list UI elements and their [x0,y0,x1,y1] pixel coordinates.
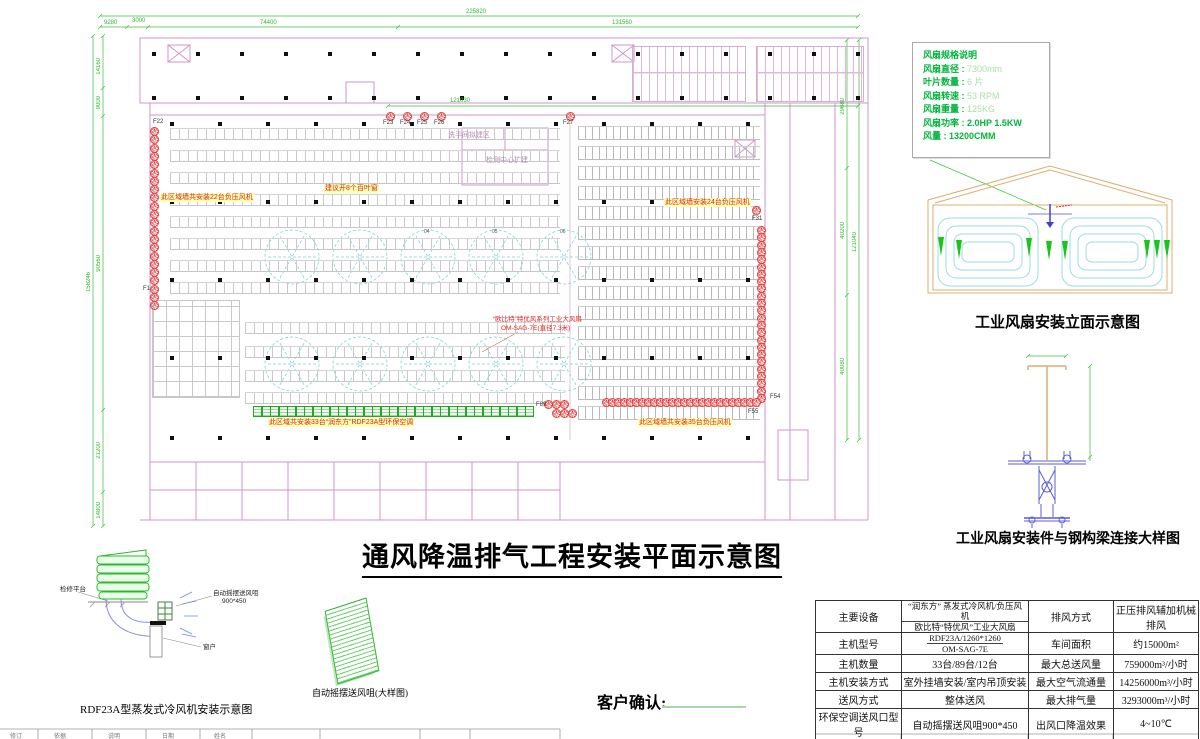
column-marker [416,52,420,56]
titleblock-strip-label: 姓名 [214,731,226,739]
dim-label: 131560 [612,20,632,26]
spec-table-cell: 主要设备 [816,601,902,633]
titleblock-strip-label: 日期 [162,731,174,739]
nozzle-label: 自动摇摆送风咀 [213,590,259,597]
negative-pressure-fan-icon [752,398,761,407]
machine-block [632,46,746,102]
fan-spec-item: 风扇直径 : 7300mm [923,63,1049,77]
cooler-detail-caption: RDF23A型蒸发式冷风机安装示意图 [80,701,252,717]
column-marker [218,436,222,440]
column-marker [504,96,508,100]
column-marker [746,122,750,126]
beam-detail-drawing [1008,366,1086,528]
workstation-row [170,282,560,294]
annotation-test-center: 检测中心扩建 [486,155,528,165]
workstation-row-dense [578,206,760,220]
workstation-row-dense [578,306,760,320]
airflow-arrow-icon [1046,241,1052,260]
elevation-caption: 工业风扇安装立面示意图 [975,311,1140,332]
spec-table-cell: 整体送风 [902,691,1029,709]
annotation-right-fans: 此区域墙安装24台负压风机 [664,198,751,207]
column-marker [196,52,200,56]
annotation-washroom: 洗手间拟建区 [448,130,490,140]
column-marker [170,278,174,282]
spec-table-cell: 送风方式 [816,691,902,709]
workstation-row-dense [578,226,760,240]
workstation-row-dense [578,146,760,160]
dim-label: 21200 [96,442,102,459]
annotation-big-fan-model-1: “欧比特”特优风系列工业大风扇 [492,315,583,324]
spec-table-cell: 约15000m² [1114,633,1199,655]
column-marker [410,436,414,440]
column-marker [768,52,772,56]
workstation-row-dense [578,166,760,180]
workstation-row-dense [578,286,760,300]
column-marker [746,436,750,440]
workstation-row [245,392,565,404]
ceiling-fan-number: 05 [492,230,498,235]
elevation-drawing [928,166,1172,293]
machine-block [756,46,864,102]
nozzle-detail-caption: 自动摇摆送风咀(大样图) [312,686,408,699]
column-marker [458,356,462,360]
column-marker [284,52,288,56]
column-marker [698,436,702,440]
fan-spec-item: 风量 : 13200CMM [923,130,1049,144]
column-marker [554,278,558,282]
column-marker [266,122,270,126]
dim-label: 9000 [96,96,102,109]
column-marker [314,122,318,126]
column-marker [362,278,366,282]
f-marker: F55 [748,409,758,415]
column-marker [554,200,558,204]
spec-table-cell: 759000m³/小时 [1114,655,1199,673]
column-marker [602,436,606,440]
column-marker [504,52,508,56]
column-marker [856,96,860,100]
column-marker [548,96,552,100]
ceiling-fan-circles [265,230,591,391]
spec-table: 主要设备“润东方” 蒸发式冷风机/负压风机欧比特“特优风”工业大风扇排风方式正压… [815,600,1199,739]
workstation-row [170,172,560,184]
column-marker [506,200,510,204]
spec-table-row: 送风方式整体送风最大排气量3293000m³/小时 [816,691,1199,709]
column-marker [314,200,318,204]
customer-confirm-signature-line[interactable] [662,706,746,708]
column-marker [592,96,596,100]
spec-table-cell: 33台/89台/12台 [902,655,1029,673]
ceiling-fan-number: 04 [424,230,430,235]
column-marker [506,122,510,126]
column-marker [152,96,156,100]
column-marker [458,122,462,126]
column-marker [410,122,414,126]
column-marker [592,52,596,56]
column-marker [218,122,222,126]
dim-label: 40200 [840,222,846,239]
column-marker [602,200,606,204]
f-marker: F25 [417,120,427,126]
column-marker [698,278,702,282]
spec-table-cell: 正压排风辅加机械排风 [1114,601,1199,633]
column-marker [266,356,270,360]
window-label: 窗户 [203,644,216,651]
column-marker [724,96,728,100]
column-marker [170,356,174,360]
column-marker [328,96,332,100]
column-marker [746,278,750,282]
column-marker [240,52,244,56]
column-marker [746,356,750,360]
spec-table-row: 环保空调送风口型号自动摇摆送风咀900*450出风口降温效果4~10℃ [816,709,1199,739]
spec-table-cell: 自动摇摆送风咀900*450 [902,709,1029,739]
negative-pressure-fan-icon [568,409,577,418]
column-marker [680,52,684,56]
f-marker: F89 [536,402,546,408]
titleblock-strip-label: 说明 [108,731,120,739]
column-marker [650,122,654,126]
drawing-sheet: 040506F22F23F24F25F26F27F31F1F89F54F5522… [0,0,1200,739]
dim-label: 29680 [840,98,846,115]
column-marker [152,52,156,56]
platform-label: 检修平台 [60,586,86,593]
spec-table-cell: 环保空调送风口型号 [816,709,902,739]
workstation-row-dense [578,366,760,380]
annotation-big-fan-model-2: OM-SAG-7E(直径7.3米) [500,324,571,333]
spec-table-row: 主机型号RDF23A/1260*1260OM-SAG-7E车间面积约15000m… [816,633,1199,655]
f-marker: F54 [770,394,780,400]
f-marker: F24 [400,120,410,126]
column-marker [812,96,816,100]
spec-table-cell: “润东方” 蒸发式冷风机/负压风机欧比特“特优风”工业大风扇 [902,601,1029,633]
workstation-row [170,260,560,272]
f-marker: F23 [383,120,393,126]
dim-label: 121040 [852,232,858,252]
annotation-coolers: 此区域共安装33台“润东方”RDF23A型环保空调 [268,418,414,427]
workstation-row-dense [578,246,760,260]
spec-table-cell: 最大排气量 [1029,691,1114,709]
column-marker [362,356,366,360]
negative-pressure-fan-icon [560,400,569,409]
column-marker [328,52,332,56]
spec-table-cell: 主机型号 [816,633,902,655]
column-marker [372,52,376,56]
workstation-row [170,216,560,228]
annotation-bottom-right-fans: 此区域墙共安装35台负压风机 [638,418,732,427]
beam-detail-caption: 工业风扇安装件与钢构梁连接大样图 [956,528,1180,548]
column-marker [266,200,270,204]
column-marker [196,96,200,100]
f-marker: F26 [434,120,444,126]
fan-spec-item: 叶片数量 : 6 片 [923,76,1049,90]
main-title: 通风降温排气工程安装平面示意图 [362,535,782,578]
column-marker [362,122,366,126]
column-marker [650,278,654,282]
column-marker [602,122,606,126]
column-marker [602,356,606,360]
spec-table-cell: 出风口降温效果 [1029,709,1114,739]
ceiling-fan-number: 06 [560,230,566,235]
f-marker: F27 [563,120,573,126]
spec-table-cell: 14256000m³/小时 [1114,673,1199,691]
airflow-arrow-icon [938,237,944,256]
column-marker [650,200,654,204]
column-marker [506,356,510,360]
titleblock-strip-label: 依据 [54,731,66,739]
spec-table-cell: 车间面积 [1029,633,1114,655]
dim-label: 40080 [840,358,846,375]
spec-table-row: 主机数量33台/89台/12台最大总送风量759000m³/小时 [816,655,1199,673]
column-marker [240,96,244,100]
spec-table-cell: 主机安装方式 [816,673,902,691]
f-marker: F1 [143,286,150,292]
annotation-left-fans: 此区域墙共安装22台负压风机 [160,193,254,202]
column-marker [768,96,772,100]
spec-table-cell: 3293000m³/小时 [1114,691,1199,709]
spec-table-cell: 排风方式 [1029,601,1114,633]
column-marker [856,52,860,56]
column-marker [554,122,558,126]
spec-table-row: 主机安装方式室外挂墙安装/室内吊顶安装最大空气流通量14256000m³/小时 [816,673,1199,691]
column-marker [650,436,654,440]
column-marker [812,52,816,56]
column-marker [554,436,558,440]
spec-table-cell: 室外挂墙安装/室内吊顶安装 [902,673,1029,691]
column-marker [636,96,640,100]
column-marker [458,278,462,282]
column-marker [698,356,702,360]
column-marker [410,200,414,204]
dim-label: 14160 [96,58,102,75]
column-marker [548,52,552,56]
airflow-arrow-icon [1144,240,1150,259]
workstation-row-dense [578,126,760,140]
column-marker [458,200,462,204]
dim-label: 9280 [104,20,117,26]
negative-pressure-fan-icon [752,206,761,215]
f-marker: F31 [752,216,762,222]
column-marker [372,96,376,100]
fan-spec-item: 风扇转速 : 53 RPM [923,90,1049,104]
column-marker [698,122,702,126]
column-marker [416,96,420,100]
column-marker [680,96,684,100]
column-marker [460,52,464,56]
spec-table-cell: 4~10℃ [1114,709,1199,739]
dim-label: 3000 [132,18,145,24]
spec-table-row: 主要设备“润东方” 蒸发式冷风机/负压风机欧比特“特优风”工业大风扇排风方式正压… [816,601,1199,633]
nozzle-size-label: 900*450 [222,598,246,605]
spec-table-cell: 主机数量 [816,655,902,673]
customer-confirm-label: 客户确认: [597,689,666,713]
column-marker [314,436,318,440]
dim-label: 121030 [450,98,470,104]
fan-spec-item: 风扇功率 : 2.0HP 1.5KW [923,117,1049,131]
workstation-row [245,370,565,382]
airflow-arrow-icon [1154,240,1160,259]
column-marker [218,278,222,282]
column-marker [362,436,366,440]
dim-label: 90560 [96,255,102,272]
column-marker [506,436,510,440]
workstation-row [245,346,565,358]
dim-label: 74400 [260,20,277,26]
evaporative-cooler-icon [525,406,534,417]
column-marker [362,200,366,204]
fan-spec-box: 风扇规格说明 风扇直径 : 7300mm叶片数量 : 6 片风扇转速 : 53 … [912,42,1050,158]
f-marker: F22 [153,119,163,125]
column-marker [170,436,174,440]
column-marker [314,356,318,360]
column-marker [602,278,606,282]
column-marker [724,52,728,56]
fan-spec-title: 风扇规格说明 [923,49,1049,63]
column-marker [458,436,462,440]
column-marker [506,278,510,282]
workstation-row [170,128,560,140]
spec-table-cell: 最大空气流通量 [1029,673,1114,691]
workstation-row [170,238,560,250]
column-marker [284,96,288,100]
workstation-row-dense [578,326,760,340]
titleblock-strip-label: 修订 [10,731,22,739]
spec-table-cell: 最大总送风量 [1029,655,1114,673]
airflow-arrow-icon [1062,241,1068,260]
spec-table-cell: RDF23A/1260*1260OM-SAG-7E [902,633,1029,655]
fan-spec-item: 风扇重量 : 125KG [923,103,1049,117]
column-marker [650,356,654,360]
column-marker [636,52,640,56]
column-marker [170,122,174,126]
dim-label: 14800 [96,502,102,519]
column-marker [266,278,270,282]
airflow-arrow-icon [956,240,962,259]
column-marker [554,356,558,360]
column-marker [410,356,414,360]
small-rooms-block [152,300,240,398]
airflow-arrow-icon [1164,240,1170,259]
annotation-louver-suggest: 建议开8个百叶窗 [324,184,379,193]
column-marker [410,278,414,282]
fan-spec-list: 风扇直径 : 7300mm叶片数量 : 6 片风扇转速 : 53 RPM风扇重量… [923,63,1049,144]
column-marker [218,356,222,360]
airflow-arrow-icon [1026,238,1032,257]
column-marker [314,278,318,282]
dim-label: 225820 [466,9,486,15]
dim-label: 158246 [86,272,92,292]
column-marker [266,436,270,440]
